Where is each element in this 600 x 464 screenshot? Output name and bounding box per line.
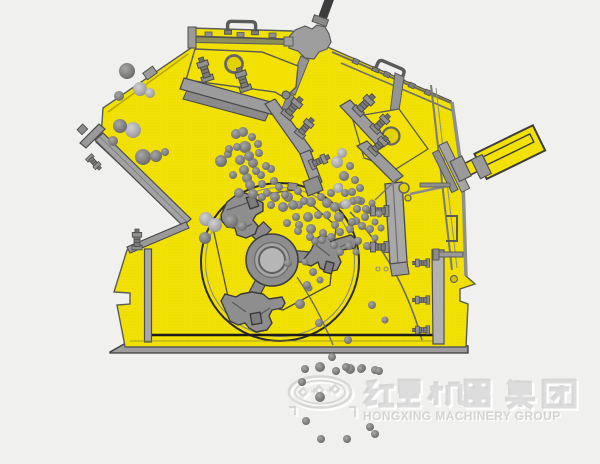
svg-text:HONGXING MACHINERY GROUP: HONGXING MACHINERY GROUP <box>363 409 561 423</box>
